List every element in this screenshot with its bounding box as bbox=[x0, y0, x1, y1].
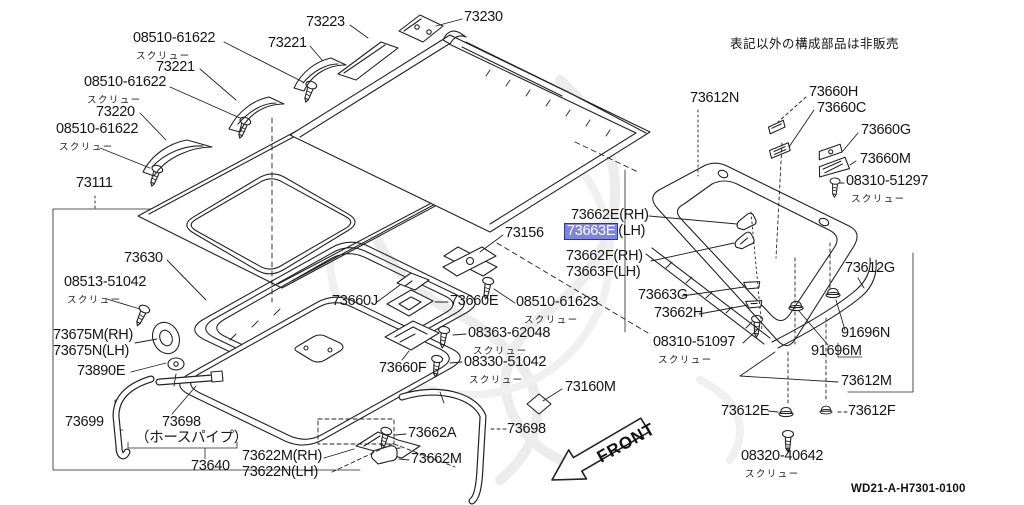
part-label-73230[interactable]: 73230 bbox=[464, 10, 503, 25]
part-label-73160M[interactable]: 73160M bbox=[565, 380, 616, 395]
part-label-08320-40642[interactable]: 08320-40642 bbox=[741, 449, 823, 464]
part-label-73698-b[interactable]: 73698 bbox=[507, 422, 546, 437]
note-unsold-parts: 表記以外の構成部品は非販売 bbox=[730, 33, 899, 52]
part-label-73612M[interactable]: 73612M bbox=[841, 374, 892, 389]
part-label-73663E-suffix: (LH) bbox=[618, 223, 645, 239]
part-label-73699[interactable]: 73699 bbox=[65, 415, 104, 430]
part-label-73660F[interactable]: 73660F bbox=[379, 361, 426, 376]
part-label-73660C[interactable]: 73660C bbox=[817, 101, 866, 116]
part-label-73612E[interactable]: 73612E bbox=[721, 404, 769, 419]
part-label-73221-b[interactable]: 73221 bbox=[156, 60, 195, 75]
part-label-73663E-row[interactable]: 73663E(LH) bbox=[564, 223, 645, 240]
part-label-73675N[interactable]: 73675N(LH) bbox=[53, 344, 129, 359]
part-label-73223[interactable]: 73223 bbox=[306, 15, 345, 30]
part-label-73221-a[interactable]: 73221 bbox=[268, 36, 307, 51]
part-label-73111[interactable]: 73111 bbox=[76, 176, 113, 191]
part-label-73662M[interactable]: 73662M bbox=[411, 452, 462, 467]
part-label-08363-62048[interactable]: 08363-62048 bbox=[468, 326, 550, 341]
part-label-08510-61622-c[interactable]: 08510-61622 bbox=[56, 122, 138, 137]
part-label-73612G[interactable]: 73612G bbox=[845, 261, 895, 276]
screw-08310-51297 bbox=[829, 178, 840, 198]
part-label-91696N[interactable]: 91696N bbox=[841, 326, 890, 341]
caption-hose-pipe: （ホースパイプ） bbox=[135, 431, 248, 446]
caption-screw-h: スクリュー bbox=[658, 352, 713, 366]
molding-73221-left bbox=[229, 97, 284, 132]
part-label-73220[interactable]: 73220 bbox=[96, 105, 135, 120]
part-label-08510-61622-a[interactable]: 08510-61622 bbox=[133, 31, 215, 46]
part-label-73698-a[interactable]: 73698 bbox=[162, 415, 201, 430]
part-label-73660J[interactable]: 73660J bbox=[332, 294, 378, 309]
caption-screw-g: スクリュー bbox=[469, 372, 524, 386]
part-label-73662H[interactable]: 73662H bbox=[654, 306, 703, 321]
part-label-73622N[interactable]: 73622N(LH) bbox=[242, 465, 318, 480]
part-label-08330-51042[interactable]: 08330-51042 bbox=[464, 355, 546, 370]
part-label-73662A[interactable]: 73662A bbox=[408, 426, 456, 441]
part-label-73660H[interactable]: 73660H bbox=[809, 85, 858, 100]
part-label-73663F[interactable]: 73663F(LH) bbox=[566, 265, 640, 280]
part-label-73890E[interactable]: 73890E bbox=[77, 364, 125, 379]
part-label-73663G[interactable]: 73663G bbox=[638, 288, 688, 303]
part-label-08310-51097[interactable]: 08310-51097 bbox=[653, 335, 735, 350]
part-label-91696M[interactable]: 91696M bbox=[811, 344, 862, 359]
front-arrow: FRONT bbox=[552, 418, 659, 480]
grommet-73612E bbox=[779, 408, 793, 417]
caption-screw-j: スクリュー bbox=[745, 466, 800, 480]
part-label-73660G[interactable]: 73660G bbox=[861, 123, 911, 138]
part-label-08513-51042[interactable]: 08513-51042 bbox=[64, 275, 146, 290]
part-label-08510-61622-b[interactable]: 08510-61622 bbox=[84, 75, 166, 90]
plate-73660G bbox=[817, 144, 843, 160]
caption-screw-c: スクリュー bbox=[59, 139, 114, 153]
parts-diagram-page: FRONT bbox=[0, 0, 1024, 505]
bracket-73156 bbox=[443, 247, 497, 276]
part-label-08510-61623[interactable]: 08510-61623 bbox=[516, 295, 598, 310]
part-label-73622M[interactable]: 73622M(RH) bbox=[242, 449, 322, 464]
clip-73660C bbox=[769, 143, 791, 159]
part-label-73612F[interactable]: 73612F bbox=[848, 404, 895, 419]
bracket-73660M bbox=[817, 157, 850, 177]
part-label-73156[interactable]: 73156 bbox=[505, 226, 544, 241]
clip-73660H bbox=[768, 120, 786, 134]
grommet-73612F bbox=[820, 406, 832, 414]
part-label-73660E[interactable]: 73660E bbox=[450, 294, 498, 309]
caption-screw-i: スクリュー bbox=[851, 191, 906, 205]
highlighted-part-label[interactable]: 73663E bbox=[564, 223, 618, 240]
part-label-08310-51297[interactable]: 08310-51297 bbox=[846, 174, 928, 189]
part-label-73612N[interactable]: 73612N bbox=[690, 91, 739, 106]
part-label-73640[interactable]: 73640 bbox=[191, 459, 230, 474]
part-label-73662E[interactable]: 73662E(RH) bbox=[571, 208, 649, 223]
caption-screw-d: スクリュー bbox=[67, 292, 122, 306]
bracket-73230 bbox=[399, 15, 443, 42]
part-label-73662F[interactable]: 73662F(RH) bbox=[566, 249, 643, 264]
caption-screw-e: スクリュー bbox=[524, 312, 579, 326]
part-label-73630[interactable]: 73630 bbox=[124, 251, 163, 266]
retainer-73675 bbox=[148, 318, 184, 357]
grommet-91696N bbox=[826, 289, 840, 298]
part-label-73660M[interactable]: 73660M bbox=[860, 152, 911, 167]
clip-73890E bbox=[168, 358, 184, 370]
diagram-code: WD21-A-H7301-0100 bbox=[851, 483, 966, 495]
part-label-73675M[interactable]: 73675M(RH) bbox=[53, 328, 133, 343]
